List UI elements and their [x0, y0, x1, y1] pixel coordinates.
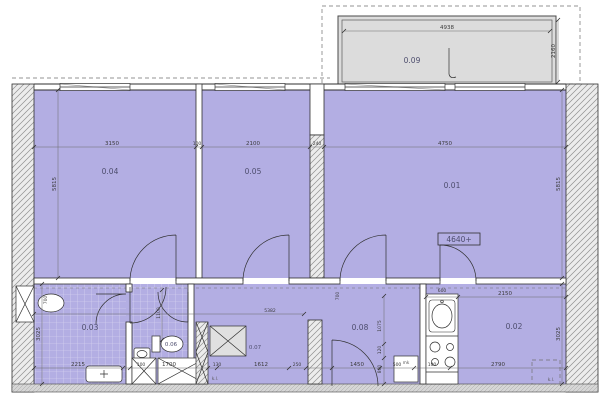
floor-plan: 0.01 0.02 0.03 0.04 0.05 0.06 0.07 0.08 … [0, 0, 600, 400]
dim-balcony-depth: 2160 [551, 44, 557, 58]
fridge-label: mk [403, 360, 410, 365]
dim-bottom-5: 1612 [254, 362, 268, 368]
dim-left-bath: 3025 [36, 327, 42, 341]
room-label-01: 0.01 [444, 181, 461, 190]
room-label-02: 0.02 [506, 322, 523, 331]
room-label-06: 0.06 [165, 342, 178, 348]
shaft-mark-label: k.l. [212, 376, 218, 381]
room-label-03: 0.03 [82, 323, 99, 332]
room-0-05-area [202, 90, 310, 278]
balcony-door [455, 84, 525, 91]
balcony [322, 6, 580, 84]
wall-03-06-lower [126, 322, 132, 384]
dim-top-2: 100 [193, 141, 202, 147]
room-label-04: 0.04 [102, 167, 119, 176]
room-label-05: 0.05 [245, 167, 262, 176]
window-room-05 [215, 84, 285, 91]
wall-05-01-upper [310, 84, 324, 135]
wall-shaft-hall [308, 320, 322, 384]
wall-03-06-upper [126, 284, 132, 292]
dim-kitchen-width: 2150 [498, 291, 512, 297]
corridor-wall-seg5 [476, 278, 566, 284]
corridor-wall-seg3 [289, 278, 340, 284]
dim-bottom-9: 100 [428, 362, 437, 368]
dim-bottom-6: 250 [293, 362, 302, 368]
dim-sv-5: 120 [377, 346, 383, 355]
dim-bottom-10: 2790 [491, 362, 505, 368]
dim-top-4: 240 [313, 141, 322, 147]
right-wall [566, 84, 598, 392]
room-0-04-area [34, 90, 196, 278]
washer-mark-label: k.l. [548, 377, 554, 382]
dim-bottom-7: 1450 [350, 362, 364, 368]
dim-bottom-1: 2215 [71, 362, 85, 368]
wall-niche-icon [16, 286, 34, 322]
elevation-marker-value: 4640+ [446, 235, 471, 244]
dim-sv-4: 1075 [377, 320, 383, 332]
dim-sv-2: 1100 [156, 307, 162, 319]
wall-04-05 [196, 84, 202, 278]
dim-sv-6: 800 [377, 365, 383, 374]
dim-right-height: 5815 [556, 177, 562, 191]
room-areas [34, 90, 566, 384]
window-room-01 [345, 84, 445, 91]
dim-sv-3: 700 [335, 292, 341, 301]
corridor-wall-seg2 [176, 278, 243, 284]
bathtub-icon [86, 366, 122, 382]
duct-box [210, 326, 246, 356]
wall-08-02 [420, 284, 426, 384]
dim-bottom-4: 130 [213, 362, 222, 368]
room-label-09: 0.09 [404, 56, 421, 65]
corridor-wall-seg4 [386, 278, 440, 284]
dim-left-height: 5815 [52, 177, 58, 191]
dim-top-1: 3150 [105, 141, 119, 147]
wall-05-01-masonry [310, 135, 324, 278]
dim-bottom-2: 100 [137, 362, 146, 368]
room-label-08: 0.08 [352, 323, 369, 332]
dim-bottom-3: 1700 [162, 362, 176, 368]
dim-corridor: 5382 [264, 308, 276, 314]
dim-bottom-8: 500 [393, 362, 402, 368]
shaft-box-small [132, 358, 156, 384]
corridor-wall-seg1 [34, 278, 130, 284]
dim-kitchen-counter: 600 [438, 288, 447, 294]
duct-strip [196, 322, 208, 384]
dim-balcony-width: 4938 [440, 25, 454, 31]
dim-sv-1: 700 [43, 296, 49, 305]
dim-right-kitchen: 3025 [556, 327, 562, 341]
left-wall [12, 84, 34, 392]
dim-top-5: 4750 [438, 141, 452, 147]
room-label-07: 0.07 [249, 345, 262, 351]
bottom-wall [12, 384, 598, 392]
window-room-04 [60, 84, 130, 91]
dim-top-3: 2100 [246, 141, 260, 147]
floor-plan-page: 0.01 0.02 0.03 0.04 0.05 0.06 0.07 0.08 … [0, 0, 600, 400]
